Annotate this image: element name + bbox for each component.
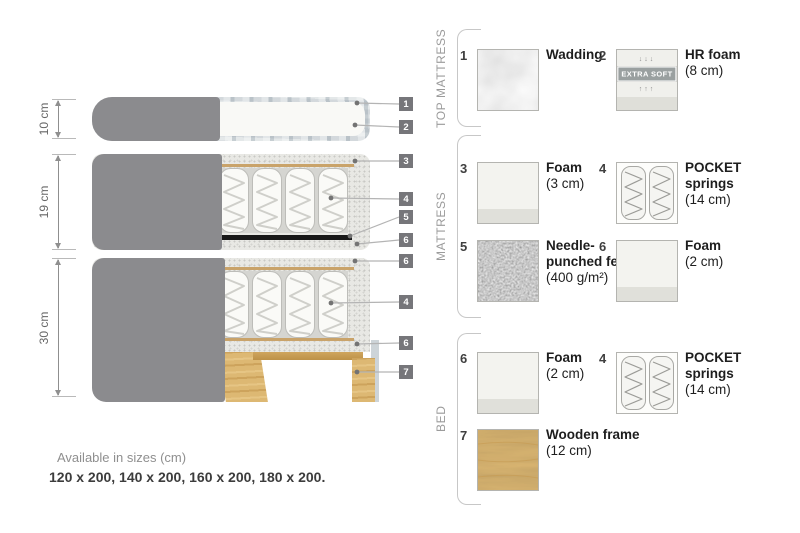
dimension-mattress: 19 cm (30, 154, 76, 250)
foam-swatch-icon (477, 162, 539, 224)
legend-number: 4 (599, 161, 606, 176)
pocket-springs-row-icon (219, 168, 348, 233)
felt-top-layer-line (218, 267, 354, 270)
callout-tag-2: 2 (399, 120, 413, 134)
legend-item-bed-pocket-springs: 4 POCKET springs (14 cm) (616, 352, 678, 414)
arrow-up-icon (55, 100, 61, 106)
legend-label: POCKET springs (14 cm) (685, 350, 767, 398)
top-mattress-cross-section (92, 97, 370, 141)
legend-number: 3 (460, 161, 467, 176)
callout-tag-6b: 6 (399, 254, 413, 268)
legend-number: 2 (599, 48, 606, 63)
callout-tag-4: 4 (399, 192, 413, 206)
available-sizes-heading: Available in sizes (cm) (57, 450, 186, 465)
arrow-down-icon (55, 243, 61, 249)
legend-label: Wooden frame (12 cm) (546, 427, 666, 459)
arrow-down-icon (55, 390, 61, 396)
section-title-top-mattress: TOP MATTRESS (431, 29, 451, 127)
legend-label: Foam (2 cm) (685, 238, 783, 270)
legend-item-bed-foam: 6 Foam (2 cm) (477, 352, 539, 414)
legend-number: 5 (460, 239, 467, 254)
hr-foam-swatch-icon: ↓↓↓ EXTRA SOFT ↑↑↑ (616, 49, 678, 111)
wooden-rail (253, 352, 363, 360)
dimension-tick (52, 249, 76, 250)
foam-swatch-icon (616, 240, 678, 302)
available-sizes-list: 120 x 200, 140 x 200, 160 x 200, 180 x 2… (49, 469, 325, 485)
legend-item-wadding: 1 Wadding (477, 49, 539, 111)
callout-tag-1: 1 (399, 97, 413, 111)
legend-item-felt: 5 Needle-punched felt (400 g/m²) (477, 240, 539, 302)
mattress-infographic: 10 cm 19 cm 30 cm (0, 0, 800, 533)
dimension-tick (52, 396, 76, 397)
dimension-label: 19 cm (37, 182, 51, 222)
legend-label: POCKET springs (14 cm) (685, 160, 767, 208)
felt-top-layer-line (218, 164, 354, 167)
extra-soft-badge: EXTRA SOFT (617, 67, 676, 82)
legend-number: 6 (460, 351, 467, 366)
dimension-top-mattress: 10 cm (30, 99, 76, 139)
callout-tag-4b: 4 (399, 295, 413, 309)
legend-item-wooden-frame: 7 Wooden frame (12 cm) (477, 429, 539, 491)
foam-swatch-icon (477, 352, 539, 414)
legend-label: HR foam (8 cm) (685, 47, 783, 79)
callout-tag-6: 6 (399, 233, 413, 247)
mattress-cross-section (92, 154, 370, 250)
dimension-label: 30 cm (37, 308, 51, 348)
pocket-springs-row-icon (219, 271, 348, 338)
arrow-up-icon (55, 155, 61, 161)
dimension-line (58, 156, 59, 248)
felt-bottom-layer-line (218, 338, 354, 341)
fabric-cover (92, 97, 220, 141)
pocket-springs-swatch-icon (616, 162, 678, 224)
legend-item-foam-3cm: 3 Foam (3 cm) (477, 162, 539, 224)
wooden-leg-right (352, 358, 375, 402)
arrow-up-icon (55, 259, 61, 265)
legend-number: 1 (460, 48, 467, 63)
legend-number: 4 (599, 351, 606, 366)
dimension-label: 10 cm (37, 99, 51, 139)
fabric-cover (92, 154, 222, 250)
callout-tag-6c: 6 (399, 336, 413, 350)
legend-number: 6 (599, 239, 606, 254)
legend-item-hr-foam: 2 ↓↓↓ EXTRA SOFT ↑↑↑ HR foam (8 cm) (616, 49, 678, 111)
felt-swatch-icon (477, 240, 539, 302)
legend-item-pocket-springs: 4 POCKET springs (14 cm) (616, 162, 678, 224)
expand-arrows-icon: ↑↑↑ (617, 86, 677, 93)
arrow-down-icon (55, 132, 61, 138)
section-title-mattress: MATTRESS (431, 135, 451, 318)
callout-tag-7: 7 (399, 365, 413, 379)
fabric-cover (92, 258, 225, 402)
callout-tag-3: 3 (399, 154, 413, 168)
callout-tag-5: 5 (399, 210, 413, 224)
dimension-line (58, 260, 59, 395)
pocket-springs-swatch-icon (616, 352, 678, 414)
legend-item-foam-2cm: 6 Foam (2 cm) (616, 240, 678, 302)
compress-arrows-icon: ↓↓↓ (617, 56, 677, 63)
dimension-bed: 30 cm (30, 258, 76, 397)
wadding-swatch-icon (477, 49, 539, 111)
legend-number: 7 (460, 428, 467, 443)
dimension-tick (52, 138, 76, 139)
needle-punched-felt-layer (218, 235, 352, 240)
section-title-bed: BED (431, 333, 451, 505)
wood-swatch-icon (477, 429, 539, 491)
bed-cross-section (92, 258, 380, 402)
